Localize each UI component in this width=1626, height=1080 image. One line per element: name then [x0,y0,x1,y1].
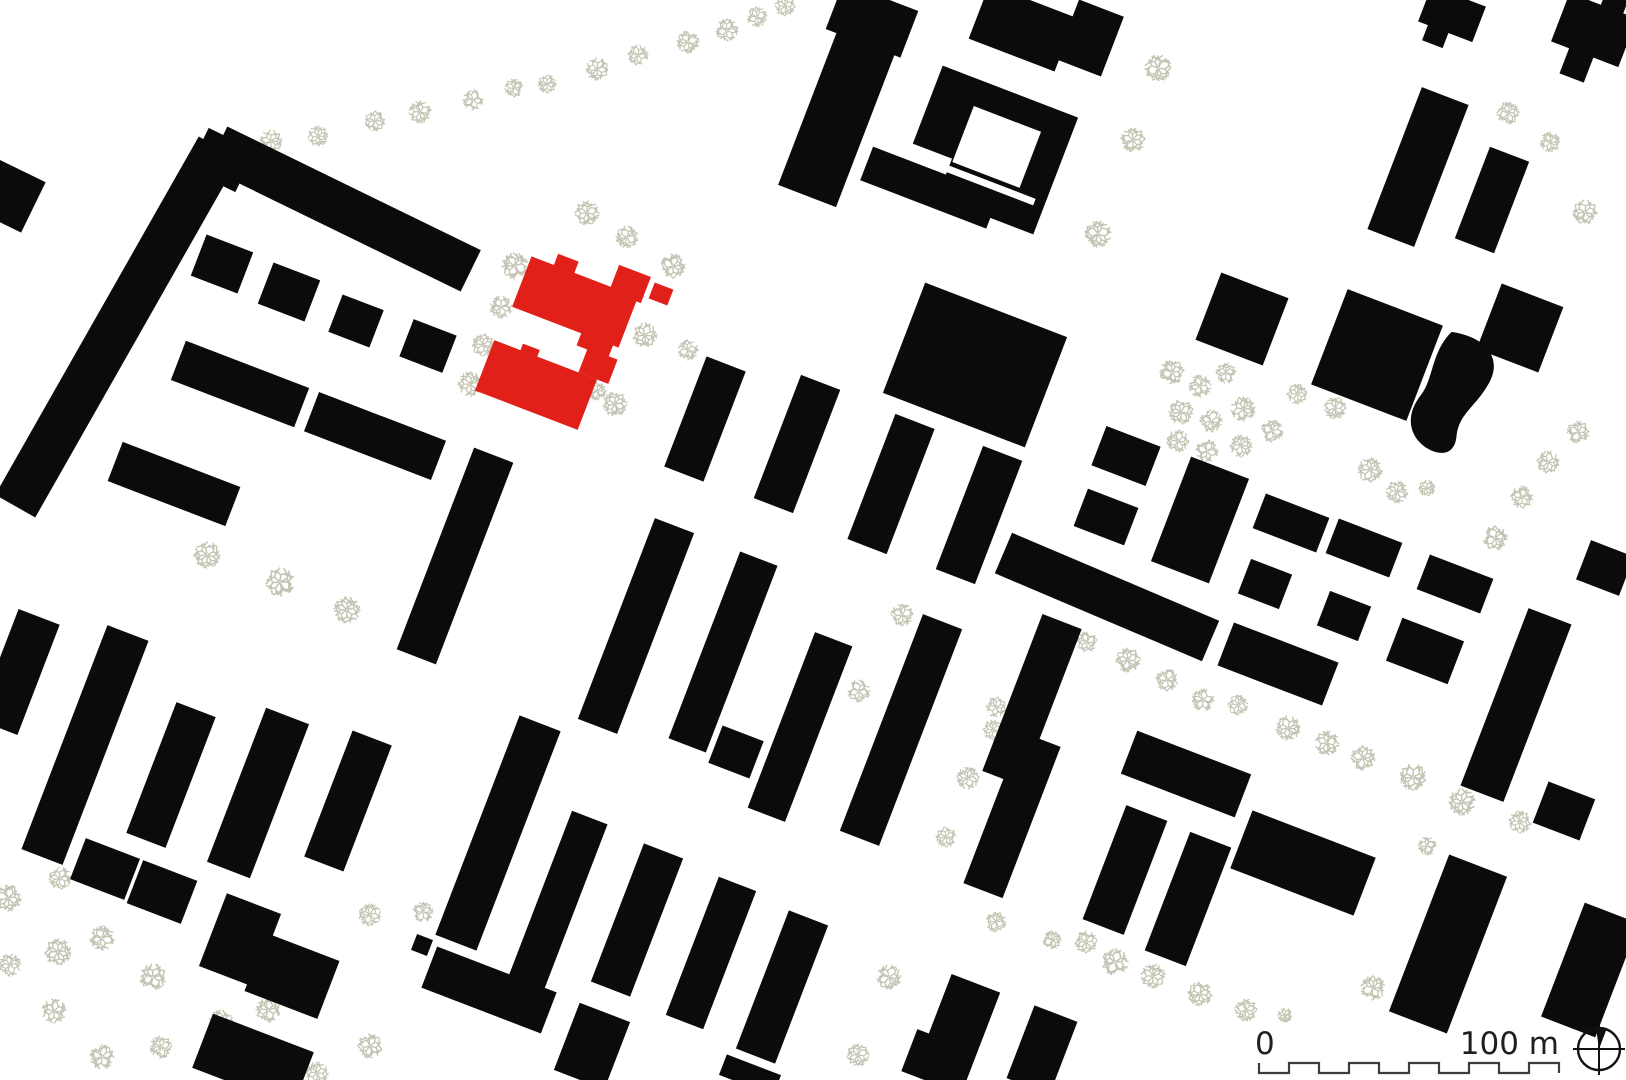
tree-symbol [306,1062,328,1080]
tree-symbol [1358,458,1382,482]
building-footprint [664,356,745,481]
tree-symbol [986,697,1006,717]
tree-symbol [1315,731,1339,755]
tree-symbol [1145,56,1171,81]
building-footprint [1121,731,1251,818]
tree-symbol [1116,648,1140,672]
tree-symbol [1103,949,1128,975]
building-footprint [304,392,446,480]
tree-symbol [1228,695,1248,715]
scale-bar-line [1259,1063,1559,1073]
tree-symbol [1141,965,1165,989]
building-footprint [171,341,309,428]
tree-symbol [628,45,648,65]
building-footprint [506,811,607,995]
tree-symbol [359,904,380,926]
tree-symbol [413,902,433,921]
tree-symbol [775,0,795,16]
tree-symbol [141,964,166,990]
tree-symbol [1361,976,1384,1000]
tree-symbol [678,340,698,360]
tree-symbol [538,75,556,93]
building-footprint [1386,618,1464,685]
building-footprint [578,518,694,734]
building-footprint [191,235,253,294]
tree-symbol [1121,128,1145,151]
tree-symbol [1160,360,1184,384]
tree-symbol [90,926,114,950]
building-footprint [1455,147,1529,254]
building-footprint [708,725,763,778]
building-footprint [397,448,514,665]
building-footprint [748,632,853,822]
tree-symbol [603,392,627,415]
tree-symbol [1449,789,1475,815]
tree-symbol [1200,410,1222,432]
tree-symbol [365,111,385,131]
tree-symbol [1075,931,1097,953]
tree-symbol [1196,440,1218,462]
building-footprint [0,609,60,735]
building-footprint [411,934,433,956]
tree-symbol [677,31,699,53]
tree-symbol [334,597,360,623]
tree-symbol [1085,222,1111,248]
site-plan-map: 0 100 m [0,0,1626,1080]
tree-symbol [194,542,220,568]
tree-symbol [308,126,328,146]
tree-symbol [1573,200,1597,223]
building-footprint [70,838,140,900]
tree-symbol [1261,421,1283,443]
building-footprint [1389,854,1507,1033]
building-footprint [1195,272,1288,365]
tree-symbol [1287,384,1307,404]
tree-symbol [1419,480,1435,496]
tree-symbol [1231,397,1255,421]
tree-symbol [1188,982,1212,1006]
tree-symbol [1511,486,1533,508]
building-footprint [207,127,481,292]
building-footprint [963,732,1060,898]
building-footprint [207,708,309,879]
tree-symbol [1483,526,1507,550]
tree-symbol [661,254,685,278]
tree-symbol [1235,999,1257,1021]
building-footprint [847,414,934,554]
tree-symbol [1167,430,1189,452]
tree-symbol [1278,1008,1292,1022]
building-footprint [1091,426,1160,486]
building-footprint [108,442,241,526]
tree-symbol [358,1034,382,1058]
tree-symbol [1351,746,1375,770]
building-footprint [1145,832,1232,966]
tree-symbol [463,90,483,110]
building-footprint [1007,1005,1078,1080]
building-footprint [192,1014,314,1080]
building-footprint [1541,903,1626,1038]
building-footprint [1238,559,1292,609]
north-arrow-needle [1599,1028,1607,1049]
tree-symbol [1386,481,1408,503]
tree-symbol [1540,132,1560,152]
tree-symbol [986,912,1006,932]
tree-symbol [1324,398,1346,419]
building-footprint [1217,622,1338,705]
site-plan-page: 0 100 m [0,0,1626,1080]
building-footprint [1151,457,1249,584]
tree-symbol [90,1045,114,1069]
scale-bar: 0 100 m [1255,1026,1559,1073]
building-footprint [1326,519,1403,578]
tree-symbol [42,999,66,1023]
tree-symbol [505,79,523,97]
building-footprint [1074,489,1139,546]
tree-symbol [0,885,21,911]
scale-distance-label: 100 m [1460,1026,1559,1062]
building-footprint [668,551,777,752]
tree-symbol [586,58,608,80]
building-footprint [969,0,1076,72]
building-footprint [127,860,198,924]
buildings-layer [0,0,1626,1080]
tree-symbol [1401,765,1426,791]
building-footprint [1576,540,1626,596]
tree-symbol [847,1044,869,1066]
building-footprint [399,319,456,373]
tree-symbol [502,253,527,279]
tree-symbol [957,768,979,790]
tree-symbol [0,954,21,976]
building-footprint [1317,591,1371,641]
tree-symbol [1216,363,1236,383]
tree-symbol [936,827,956,847]
building-footprint [754,375,841,513]
building-footprint [258,263,320,322]
tree-symbol [1192,689,1214,711]
building-footprint [1056,0,1124,76]
tree-symbol [49,867,71,889]
tree-symbol [1169,401,1193,424]
building-footprint [1253,494,1330,553]
tree-symbol [1043,931,1061,949]
tree-symbol [150,1036,172,1058]
building-footprint [736,910,828,1063]
building-footprint [304,730,392,871]
tree-symbol [1509,811,1531,833]
scale-zero-label: 0 [1255,1026,1275,1062]
tree-symbol [716,19,738,41]
building-footprint [840,614,962,846]
highlighted-building [649,282,674,305]
building-footprint [328,294,383,347]
tree-symbol [45,939,71,965]
tree-symbol [409,101,431,123]
tree-symbol [747,7,767,27]
tree-symbol [1077,632,1097,652]
building-footprint [666,877,756,1030]
tree-symbol [1276,716,1300,740]
tree-symbol [1156,670,1177,691]
tree-symbol [1537,451,1559,473]
building-footprint [1533,782,1595,841]
tree-symbol [1189,375,1211,397]
building-footprint [1230,810,1375,915]
tree-symbol [1418,837,1436,855]
tree-symbol [1230,435,1252,457]
tree-symbol [575,201,599,224]
tree-symbol [266,568,293,596]
tree-symbol [848,680,870,702]
building-footprint [126,702,215,848]
building-footprint [1083,805,1168,935]
tree-symbol [616,226,638,248]
tree-symbol [877,965,901,989]
building-footprint [554,1003,630,1080]
tree-symbol [891,604,913,626]
building-footprint [1460,608,1571,802]
building-footprint [591,843,683,996]
tree-symbol [633,323,657,347]
building-footprint [1367,87,1468,247]
building-footprint [0,159,46,232]
tree-symbol [490,296,511,318]
tree-symbol [1497,102,1519,124]
tree-symbol [1567,421,1589,443]
building-footprint [1417,555,1494,614]
